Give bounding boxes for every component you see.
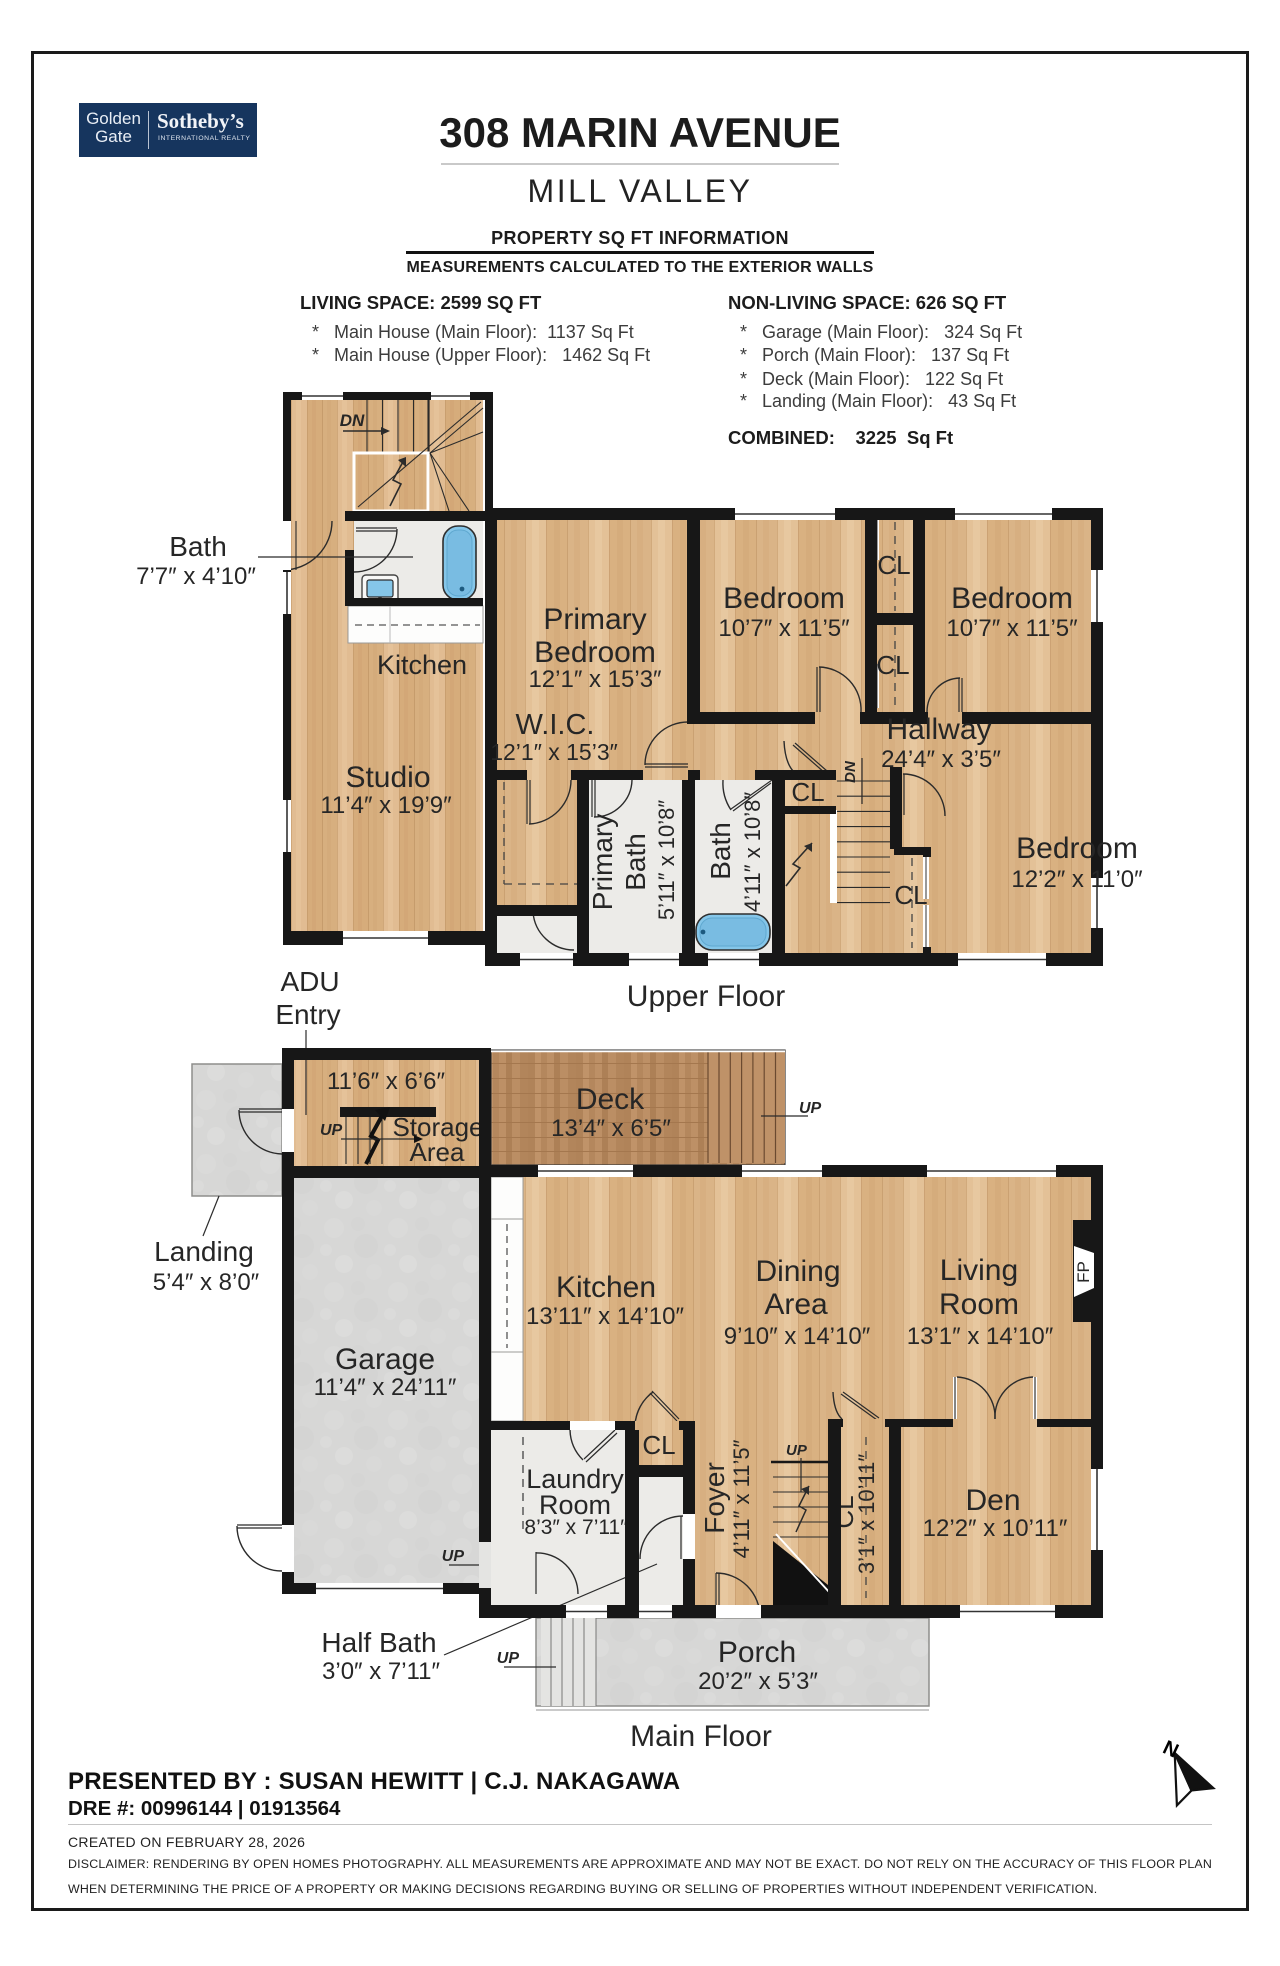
svg-text:Bath: Bath: [169, 531, 227, 562]
svg-text:Area: Area: [764, 1288, 828, 1321]
svg-text:Primary: Primary: [543, 603, 646, 636]
svg-text:Bedroom: Bedroom: [951, 582, 1073, 615]
svg-text:Bath: Bath: [705, 822, 736, 880]
svg-text:CL: CL: [894, 880, 927, 910]
svg-text:13’4″ x 6’5″: 13’4″ x 6’5″: [551, 1115, 671, 1142]
svg-text:Hallway: Hallway: [886, 713, 991, 746]
svg-text:Upper Floor: Upper Floor: [627, 980, 785, 1013]
svg-text:Living: Living: [940, 1254, 1018, 1287]
svg-text:CL: CL: [791, 777, 824, 807]
svg-text:Bedroom: Bedroom: [723, 582, 845, 615]
svg-text:Garage: Garage: [335, 1343, 435, 1376]
svg-text:CL: CL: [877, 550, 910, 580]
svg-text:Studio: Studio: [345, 761, 430, 794]
svg-text:ADU: ADU: [280, 966, 339, 997]
svg-text:Half Bath: Half Bath: [321, 1627, 436, 1658]
svg-text:9’10″ x 14’10″: 9’10″ x 14’10″: [724, 1323, 871, 1350]
svg-text:CL: CL: [642, 1430, 675, 1460]
svg-text:Foyer: Foyer: [699, 1462, 730, 1534]
svg-text:UP: UP: [799, 1100, 822, 1117]
svg-text:W.I.C.: W.I.C.: [516, 709, 595, 741]
svg-text:10’7″ x 11’5″: 10’7″ x 11’5″: [946, 615, 1078, 642]
svg-text:Deck: Deck: [576, 1083, 645, 1116]
svg-text:3’0″ x 7’11″: 3’0″ x 7’11″: [322, 1658, 440, 1685]
svg-text:Main Floor: Main Floor: [630, 1720, 772, 1753]
svg-text:4’11″ x 10’8″: 4’11″ x 10’8″: [740, 792, 765, 913]
svg-text:12’2″ x 11’0″: 12’2″ x 11’0″: [1011, 866, 1143, 893]
svg-text:8’3″ x 7’11″: 8’3″ x 7’11″: [524, 1516, 628, 1539]
svg-text:Area: Area: [410, 1137, 465, 1167]
svg-text:DN: DN: [340, 411, 365, 430]
svg-text:Bedroom: Bedroom: [1016, 832, 1138, 865]
svg-text:20’2″ x 5’3″: 20’2″ x 5’3″: [698, 1668, 818, 1695]
svg-text:Entry: Entry: [275, 999, 340, 1030]
svg-text:12’2″ x 10’11″: 12’2″ x 10’11″: [923, 1515, 1068, 1542]
svg-text:Kitchen: Kitchen: [556, 1271, 656, 1304]
svg-text:13’1″ x 14’10″: 13’1″ x 14’10″: [907, 1323, 1054, 1350]
svg-text:Room: Room: [939, 1288, 1019, 1321]
svg-text:Dining: Dining: [755, 1255, 840, 1288]
svg-text:FP: FP: [1074, 1261, 1093, 1283]
svg-text:11’4″ x 19’9″: 11’4″ x 19’9″: [320, 792, 452, 819]
svg-text:11’6″ x 6’6″: 11’6″ x 6’6″: [327, 1068, 445, 1095]
svg-text:Bedroom: Bedroom: [534, 636, 656, 669]
svg-text:Porch: Porch: [718, 1636, 796, 1669]
svg-text:UP: UP: [497, 1650, 520, 1667]
svg-text:5’11″ x 10’8″: 5’11″ x 10’8″: [654, 800, 679, 921]
svg-text:UP: UP: [320, 1122, 343, 1139]
svg-text:12’1″ x 15’3″: 12’1″ x 15’3″: [528, 666, 662, 693]
svg-text:Den: Den: [965, 1484, 1020, 1517]
svg-text:UP: UP: [442, 1548, 465, 1565]
svg-text:4’11″ x 11’5″: 4’11″ x 11’5″: [729, 1439, 754, 1558]
svg-text:Bath: Bath: [620, 833, 651, 891]
svg-text:11’4″ x 24’11″: 11’4″ x 24’11″: [314, 1374, 457, 1401]
svg-text:5’4″ x 8’0″: 5’4″ x 8’0″: [153, 1269, 260, 1296]
svg-text:Primary: Primary: [587, 814, 618, 910]
svg-text:10’7″ x 11’5″: 10’7″ x 11’5″: [718, 615, 850, 642]
svg-text:Landing: Landing: [154, 1236, 254, 1267]
svg-text:UP: UP: [786, 1442, 808, 1459]
svg-text:13’11″ x 14’10″: 13’11″ x 14’10″: [526, 1303, 684, 1330]
svg-text:7’7″ x 4’10″: 7’7″ x 4’10″: [136, 563, 256, 590]
svg-text:CL: CL: [876, 650, 909, 680]
svg-text:Kitchen: Kitchen: [377, 650, 467, 680]
svg-text:24’4″ x 3’5″: 24’4″ x 3’5″: [881, 746, 1001, 773]
svg-text:12’1″ x 15’3″: 12’1″ x 15’3″: [490, 739, 618, 765]
svg-text:DN: DN: [842, 760, 859, 783]
